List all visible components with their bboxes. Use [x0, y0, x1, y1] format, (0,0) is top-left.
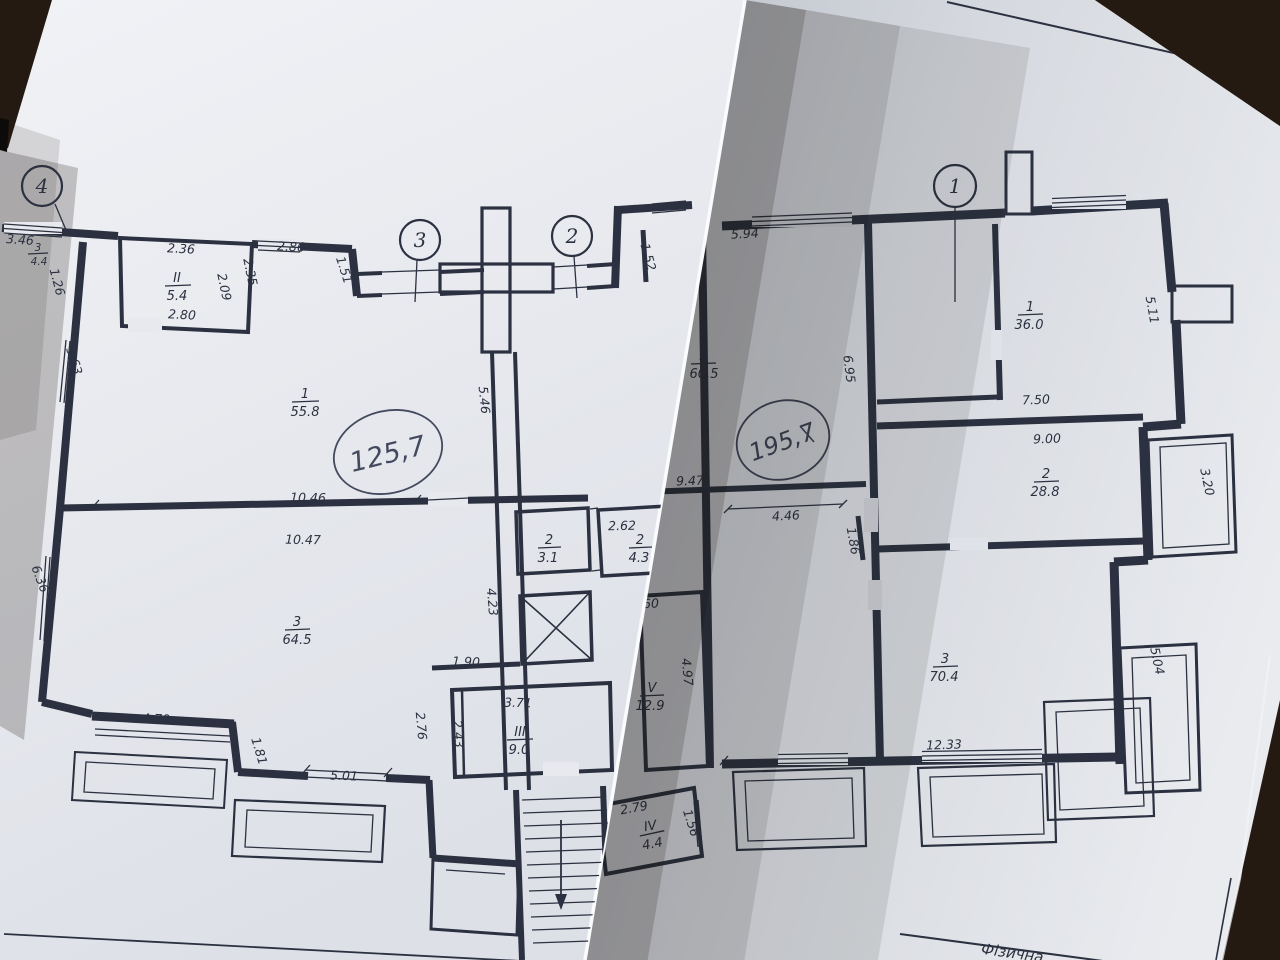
dimension-label: 5.46	[476, 385, 494, 414]
dimension-label: 3.71	[504, 695, 532, 710]
floorplan-photo: 1 5.94 6.95 9.47 4.46 1.86 2.60 4.97 5.1…	[0, 0, 1280, 960]
room-area: 28.8	[1031, 485, 1060, 500]
room-number: 1	[301, 387, 309, 402]
room-number: 2	[545, 533, 553, 548]
dimension-label: 9.00	[1033, 431, 1061, 447]
room-area: 55.8	[291, 405, 320, 420]
dimension-label: 1.90	[452, 654, 480, 670]
dimension-label: 2.86	[277, 238, 306, 254]
dimension-label: 10.47	[285, 532, 321, 548]
axis-marker-3: 3	[414, 228, 427, 252]
room-number: II	[173, 271, 181, 286]
dimension-label: 2.62	[608, 518, 636, 533]
room-area: 64.5	[283, 633, 312, 648]
axis-marker-4: 4	[35, 174, 49, 198]
room-number: 2	[1042, 467, 1050, 482]
dimension-label: 5.01	[330, 768, 358, 784]
dimension-label: 2.76	[413, 711, 430, 740]
room-area: 5.4	[167, 289, 188, 304]
room-number: 3	[941, 652, 949, 667]
axis-marker-2: 2	[565, 224, 579, 248]
dimension-label: 10.46	[290, 490, 326, 506]
room-area: 36.0	[1015, 318, 1044, 333]
dimension-label: 2.80	[168, 306, 197, 322]
dimension-label: 4.70	[142, 710, 171, 726]
room-area: 70.4	[930, 670, 959, 685]
room-number: 2	[636, 533, 644, 548]
room-area: 4.3	[629, 551, 650, 566]
dimension-label: 2.43	[450, 719, 467, 748]
room-number: III	[514, 725, 526, 740]
dimension-label: 12.33	[926, 736, 962, 752]
dimension-label: 3.46	[6, 231, 35, 248]
room-area: 3.1	[538, 551, 559, 566]
dimension-label: 7.50	[1022, 392, 1050, 408]
room-number: 1	[1026, 300, 1034, 315]
room-area: 4.4	[31, 256, 48, 268]
room-number: 3	[35, 242, 42, 254]
dimension-label: 4.23	[484, 587, 501, 616]
room-area: 9.0	[509, 743, 530, 758]
room-number: 3	[293, 615, 301, 630]
dimension-label: 2.36	[167, 240, 196, 256]
